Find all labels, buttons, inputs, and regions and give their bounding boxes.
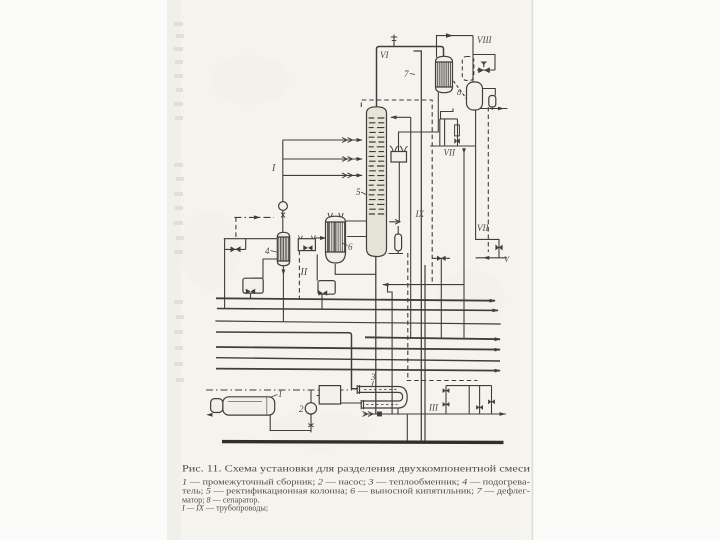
svg-text:VIII: VIII [477,35,492,45]
svg-text:VII: VII [444,148,456,158]
svg-text:VII: VII [477,223,489,233]
svg-text:I: I [271,163,276,174]
svg-text:5: 5 [356,187,361,197]
svg-text:6: 6 [348,242,353,252]
svg-text:III: III [428,403,439,413]
svg-text:7: 7 [404,69,409,79]
svg-text:3: 3 [370,372,376,382]
svg-text:4: 4 [265,246,270,256]
svg-text:I — IX — трубопроводы;: I — IX — трубопроводы; [181,503,268,512]
svg-text:тель; 5 — ректификационная кол: тель; 5 — ректификационная колонна; 6 — … [182,487,530,496]
svg-text:IX: IX [415,209,425,219]
svg-text:VI: VI [380,50,389,60]
svg-text:II: II [300,267,308,278]
svg-text:1: 1 [278,389,283,399]
svg-text:2: 2 [299,404,304,414]
svg-text:Рис. 11. Схема установки для р: Рис. 11. Схема установки для разделения … [182,464,530,475]
svg-text:1 — промежуточный сборник; 2 —: 1 — промежуточный сборник; 2 — насос; 3 … [182,478,530,487]
